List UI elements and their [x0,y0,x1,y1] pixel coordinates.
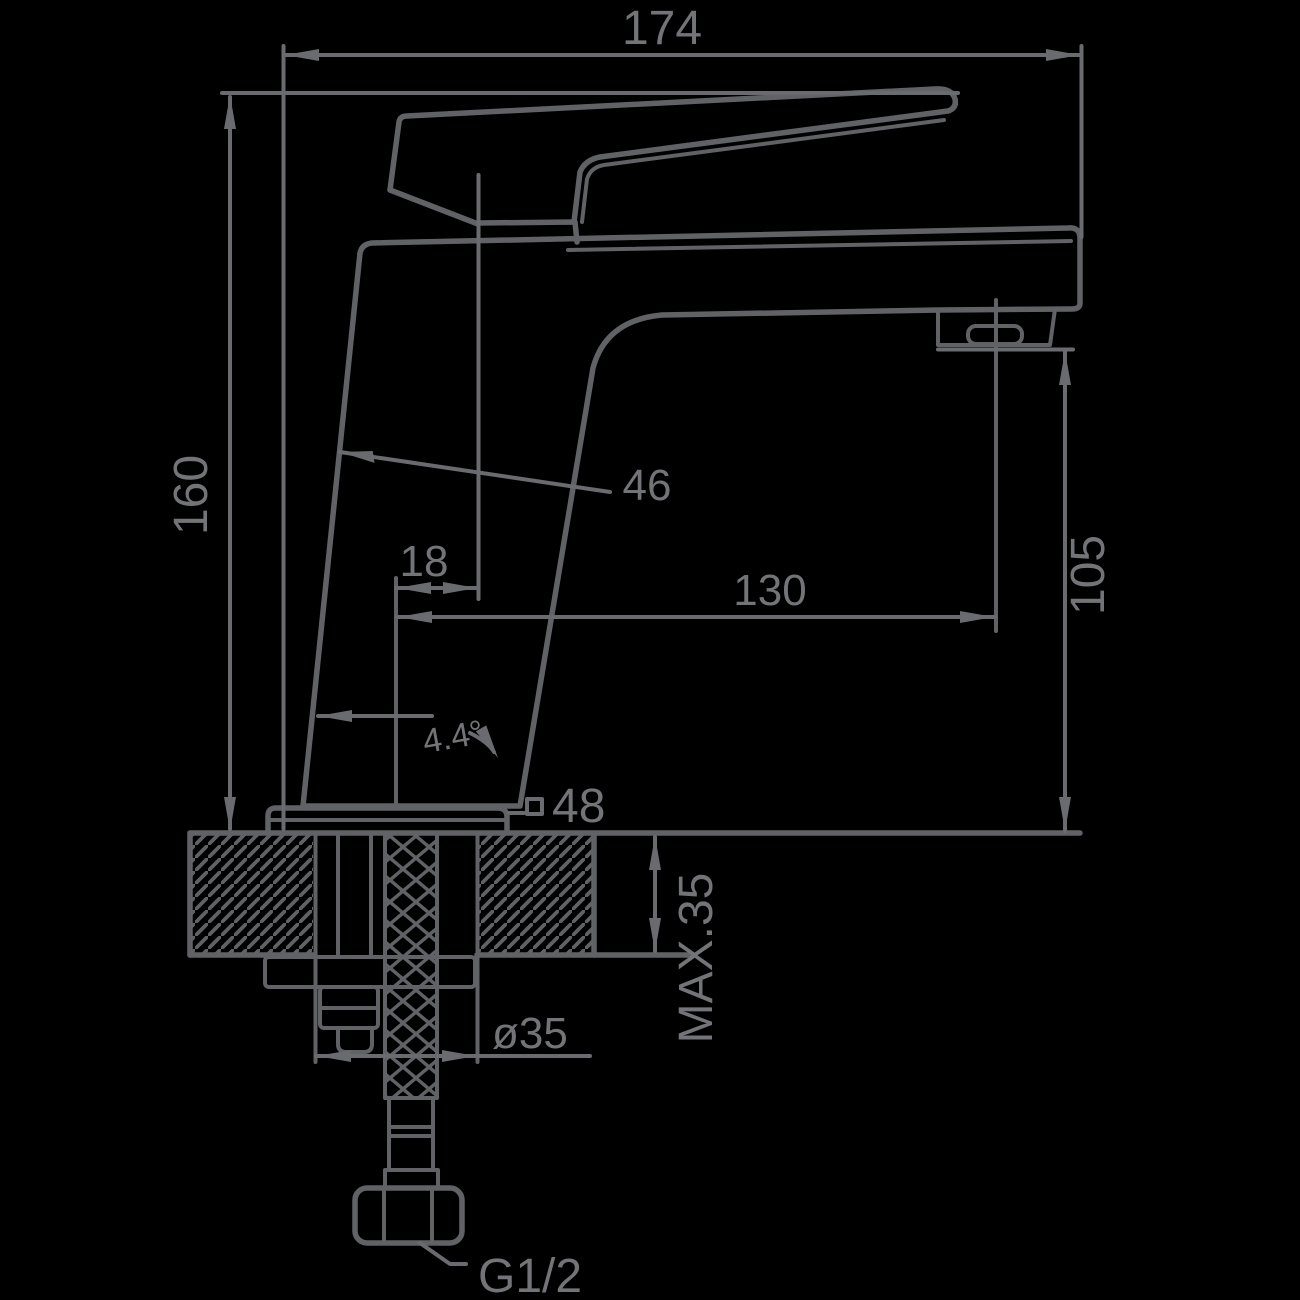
body-width-label: 46 [623,461,672,510]
mounting-stud [338,836,371,956]
dim-tilt-angle: 4.4° [318,710,498,761]
countertop-hatch-right [479,835,594,953]
technical-drawing-page: 174 160 46 18 130 105 [0,0,1300,1300]
handle-chin-edge [390,190,478,224]
dim-body-width: 46 [340,451,671,510]
dim-connection-thread: G1/2 [420,1243,582,1300]
handle-lever [390,89,955,242]
dim-overall-width: 174 [284,2,1082,829]
dim-max-thickness: MAX.35 [649,836,723,1043]
max-thickness-label: MAX.35 [670,873,723,1044]
spout-inner-edge [568,241,1071,250]
faucet-body-outline [303,228,1080,806]
connection-thread-label: G1/2 [478,1250,582,1300]
square-symbol-icon [527,799,542,814]
outlet-height-label: 105 [1062,535,1115,615]
overall-height-label: 160 [165,455,218,535]
technical-drawing-canvas: 174 160 46 18 130 105 [0,0,1300,1300]
shank-braid [386,834,436,1098]
tilt-angle-label: 4.4° [420,713,487,761]
mounting-bracket [265,957,475,987]
stud-end-cap [338,1028,372,1052]
hose-hex-nut [355,1188,462,1243]
base-plate [268,808,507,831]
handle-offset-label: 18 [400,537,449,586]
countertop-hatch-left [192,835,313,953]
overall-width-label: 174 [622,2,702,55]
base-square-label: 48 [552,780,605,833]
dim-outlet-height: 105 [938,350,1115,832]
dim-hole-diameter: ø35 [316,1009,591,1062]
dim-spout-reach: 130 [397,566,995,623]
hole-diameter-label: ø35 [492,1009,568,1058]
spout-reach-label: 130 [733,566,806,615]
